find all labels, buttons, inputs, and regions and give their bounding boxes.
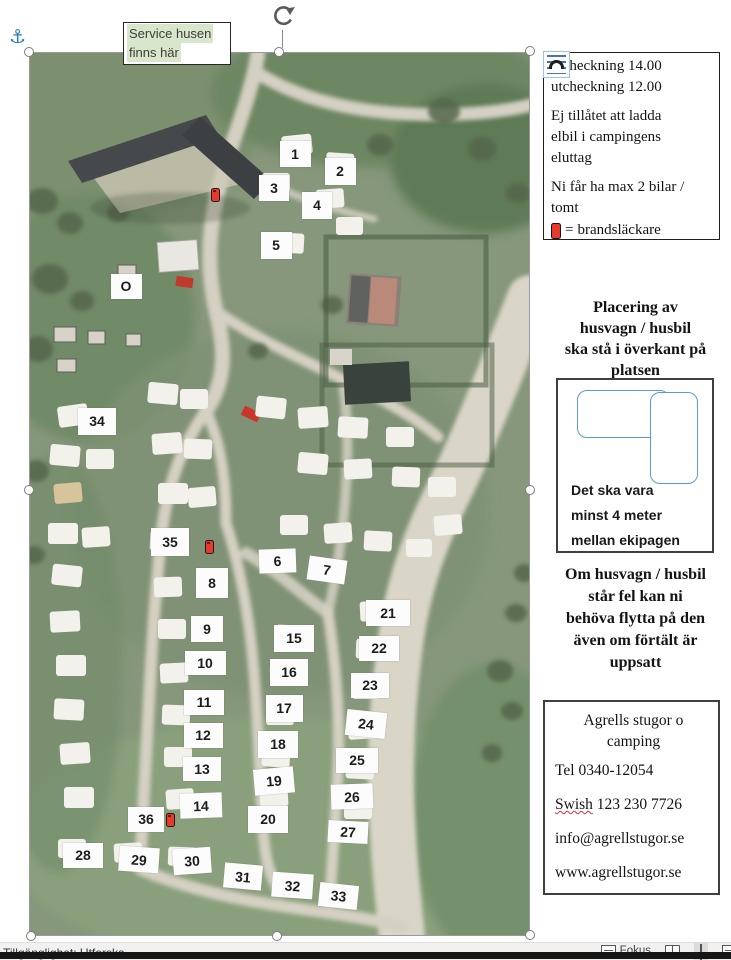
- swish-number: Swish 123 230 7726: [555, 795, 712, 815]
- word-document-page: { "callout": { "line1": "Service husen",…: [0, 0, 731, 959]
- rule-max-cars: Ni får ha max 2 bilar / tomt: [551, 177, 715, 219]
- company-name: Agrells stugor o camping: [555, 710, 712, 752]
- plot-marker-27: 27: [327, 820, 368, 844]
- swish-digits: 123 230 7726: [593, 796, 682, 813]
- rotate-handle-icon[interactable]: [269, 3, 296, 35]
- rule-no-ev-charging: Ej tillåtet att ladda elbil i campingens…: [551, 106, 715, 169]
- resize-handle-middle-right[interactable]: [525, 485, 535, 495]
- plot-marker-1: 1: [280, 141, 311, 167]
- taskbar-edge: [0, 952, 731, 959]
- plot-marker-24: 24: [345, 709, 387, 739]
- plot-marker-16: 16: [270, 659, 308, 686]
- phone-number: Tel 0340-12054: [555, 761, 712, 781]
- swish-word: Swish: [555, 796, 593, 813]
- campsite-aerial-map-image[interactable]: 12345O3435867910111213141516171819202122…: [29, 52, 530, 936]
- website-address: www.agrellstugor.se: [555, 863, 712, 883]
- plot-marker-17: 17: [266, 695, 303, 722]
- plot-marker-29: 29: [118, 845, 160, 873]
- resize-handle-bottom-left[interactable]: [26, 931, 36, 941]
- plot-marker-18: 18: [258, 731, 298, 758]
- diagram-note: Det ska vara minst 4 meter mellan ekipag…: [571, 478, 680, 553]
- plot-marker-35: 35: [151, 528, 189, 556]
- service-house-callout[interactable]: Service husen finns här: [123, 22, 231, 65]
- plot-marker-26: 26: [331, 783, 374, 809]
- fire-extinguisher-icon: [205, 540, 214, 554]
- plot-marker-31: 31: [223, 862, 263, 890]
- checkin-rules-textbox[interactable]: incheckning 14.00 utcheckning 12.00 Ej t…: [543, 52, 720, 240]
- resize-handle-middle-left[interactable]: [24, 485, 34, 495]
- plot-marker-4: 4: [302, 192, 332, 219]
- plot-marker-23: 23: [351, 673, 389, 698]
- extinguisher-legend: = brandsläckare: [551, 220, 715, 241]
- layout-options-button[interactable]: [543, 51, 570, 78]
- checkin-times: incheckning 14.00 utcheckning 12.00: [551, 56, 715, 98]
- contact-textbox[interactable]: Agrells stugor o camping Tel 0340-12054 …: [543, 700, 720, 895]
- legend-label: brandsläckare: [577, 220, 660, 241]
- fire-extinguisher-icon: [211, 188, 220, 202]
- plot-marker-15: 15: [274, 625, 314, 652]
- callout-line-2: finns här: [127, 43, 181, 62]
- plot-marker-14: 14: [180, 792, 223, 818]
- placement-heading: Placering av husvagn / husbil ska stå i …: [540, 297, 731, 381]
- plot-marker-25: 25: [336, 748, 378, 773]
- plot-marker-7: 7: [307, 555, 348, 584]
- legend-equals: =: [565, 220, 573, 241]
- fire-extinguisher-icon: [166, 813, 175, 827]
- plot-marker-36: 36: [128, 807, 164, 832]
- plot-marker-9: 9: [191, 616, 223, 642]
- resize-handle-bottom-right[interactable]: [525, 930, 535, 940]
- plot-marker-10: 10: [185, 651, 226, 675]
- plot-marker-19: 19: [253, 766, 295, 795]
- resize-handle-top-right[interactable]: [525, 46, 535, 56]
- plot-marker-13: 13: [183, 757, 221, 781]
- resize-handle-top-left[interactable]: [24, 47, 34, 57]
- plot-marker-22: 22: [359, 636, 399, 661]
- caravan-outline-vertical: [650, 392, 698, 484]
- plot-marker-5: 5: [261, 232, 292, 259]
- plot-marker-32: 32: [271, 871, 314, 899]
- plot-marker-34: 34: [78, 408, 116, 435]
- plot-marker-28: 28: [63, 843, 103, 868]
- plot-marker-20: 20: [248, 806, 288, 833]
- plot-marker-6: 6: [258, 548, 296, 573]
- layout-options-arch-icon: [549, 60, 564, 69]
- anchor-icon: ⚓: [9, 26, 26, 48]
- plot-marker-30: 30: [172, 847, 212, 876]
- placement-diagram-box[interactable]: Det ska vara minst 4 meter mellan ekipag…: [556, 378, 714, 553]
- plot-marker-21: 21: [366, 600, 410, 626]
- plot-marker-12: 12: [184, 723, 223, 748]
- resize-handle-top-middle[interactable]: [274, 47, 284, 57]
- resize-handle-bottom-middle[interactable]: [272, 931, 282, 941]
- plot-marker-O: O: [111, 274, 142, 299]
- plot-marker-33: 33: [317, 882, 358, 910]
- fire-extinguisher-icon: [551, 223, 561, 239]
- plot-marker-8: 8: [196, 568, 228, 598]
- plot-marker-11: 11: [184, 690, 224, 715]
- plot-marker-3: 3: [259, 175, 289, 201]
- email-address: info@agrellstugor.se: [555, 829, 712, 849]
- callout-line-1: Service husen: [127, 24, 213, 43]
- plot-marker-2: 2: [325, 158, 356, 185]
- relocation-warning: Om husvagn / husbil står fel kan ni behö…: [540, 564, 731, 674]
